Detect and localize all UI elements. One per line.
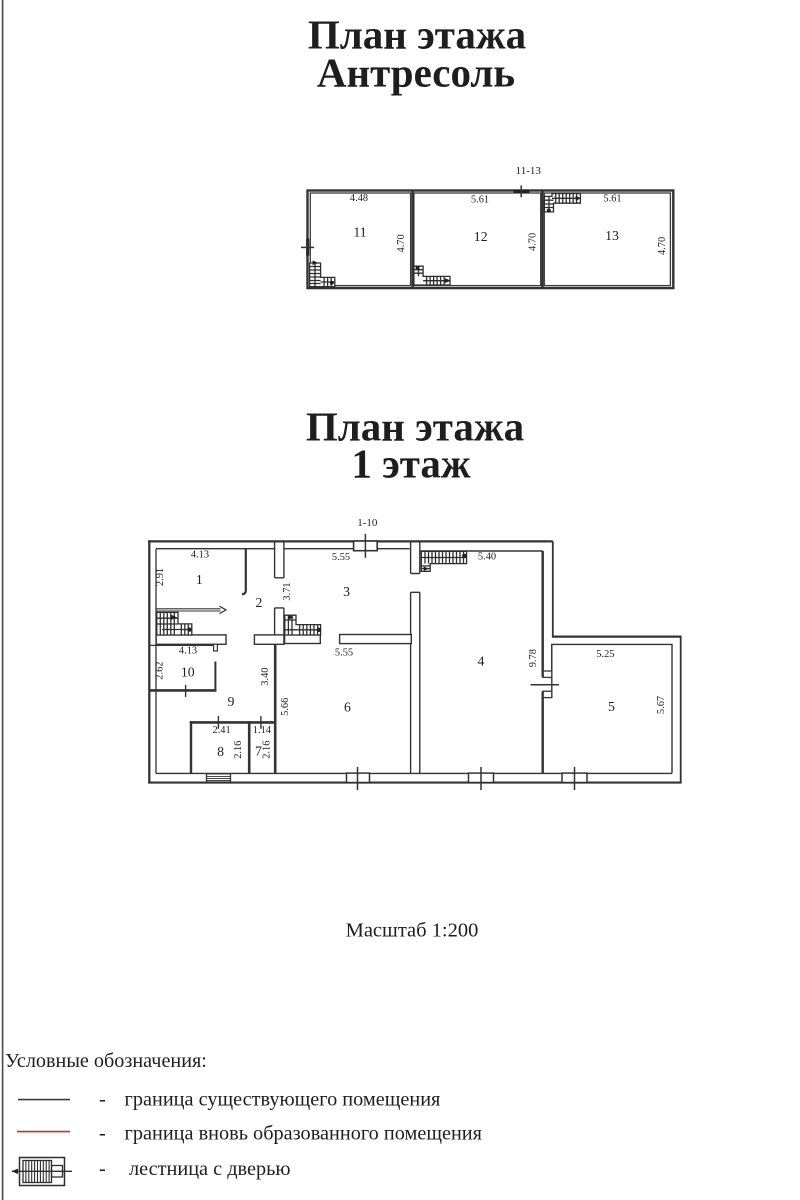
svg-text:1.14: 1.14 [253,725,272,736]
svg-text:граница вновь образованного по: граница вновь образованного помещения [125,1123,482,1145]
svg-text:Условные обозначения:: Условные обозначения: [5,1050,207,1072]
svg-text:7: 7 [255,744,262,759]
svg-text:2.41: 2.41 [213,725,231,736]
svg-text:2.62: 2.62 [155,662,166,680]
svg-text:лестница с дверью: лестница с дверью [129,1158,291,1180]
svg-text:4.70: 4.70 [396,234,407,252]
svg-text:13: 13 [605,228,619,243]
svg-text:10: 10 [181,665,195,680]
svg-text:1 этаж: 1 этаж [351,440,471,486]
svg-text:5.40: 5.40 [478,552,496,563]
svg-text:5.61: 5.61 [471,195,489,206]
svg-text:6: 6 [344,700,351,715]
svg-text:2.16: 2.16 [261,741,272,759]
svg-text:11-13: 11-13 [516,165,542,177]
svg-text:5: 5 [608,699,615,714]
svg-text:4.48: 4.48 [350,193,368,204]
svg-text:8: 8 [217,744,224,759]
svg-text:5.67: 5.67 [656,696,667,714]
svg-text:4: 4 [478,654,485,669]
svg-text:4.70: 4.70 [528,233,539,251]
svg-text:3.40: 3.40 [260,668,271,686]
svg-text:3.71: 3.71 [282,582,293,600]
svg-text:2.91: 2.91 [155,568,166,586]
svg-text:4.13: 4.13 [179,646,197,657]
svg-text:1: 1 [196,572,203,587]
svg-text:Антресоль: Антресоль [317,50,515,96]
svg-text:5.55: 5.55 [335,647,353,658]
svg-text:-: - [99,1158,106,1180]
svg-text:Масштаб 1:200: Масштаб 1:200 [346,920,479,942]
svg-text:11: 11 [353,225,366,240]
svg-text:5.61: 5.61 [603,194,621,205]
svg-text:1-10: 1-10 [357,517,378,529]
svg-text:9: 9 [227,694,234,709]
svg-text:5.55: 5.55 [332,552,350,563]
svg-text:4.70: 4.70 [657,237,668,255]
svg-text:3: 3 [343,584,350,599]
svg-text:2: 2 [256,595,263,610]
svg-text:5.25: 5.25 [596,649,614,660]
svg-text:12: 12 [474,229,488,244]
svg-text:9.78: 9.78 [528,649,539,667]
svg-text:-: - [99,1123,106,1145]
svg-text:4.13: 4.13 [191,549,209,560]
svg-text:5.66: 5.66 [280,698,291,716]
svg-text:граница существующего помещени: граница существующего помещения [125,1089,441,1111]
svg-text:-: - [99,1089,106,1111]
svg-text:2.16: 2.16 [233,741,244,759]
